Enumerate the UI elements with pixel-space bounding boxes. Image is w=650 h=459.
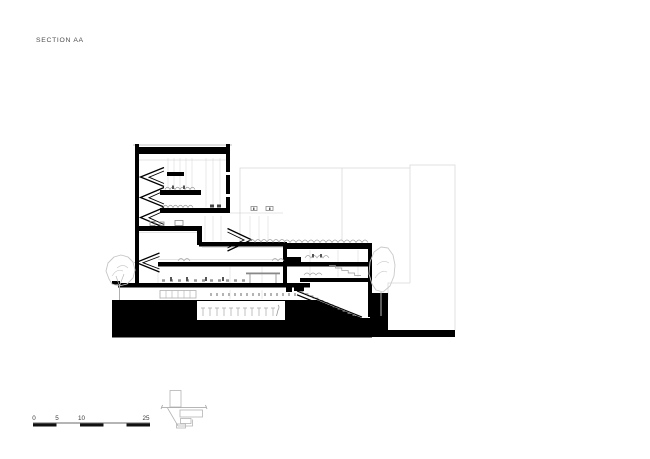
roof-post-left: [135, 144, 139, 155]
key-plan-wing: [180, 410, 203, 417]
floor-slab-lower: [135, 226, 199, 231]
tower-wall-left: [135, 154, 139, 287]
stair-landing-block: [294, 287, 304, 291]
floor-slab-mid: [160, 208, 230, 213]
stair-flight-1: [141, 168, 165, 187]
scale-label-5: 5: [55, 415, 59, 422]
tower-chairs: [210, 205, 221, 208]
stair-chevrons: [136, 168, 252, 273]
scale-label-25: 25: [142, 415, 150, 422]
scale-label-0: 0: [32, 415, 36, 422]
scale-bar-segments: [33, 424, 150, 427]
poche-footing: [370, 293, 388, 337]
tree-right-canopy: [369, 247, 395, 292]
floor-slab-upper: [160, 190, 201, 195]
stair-flight-ground: [136, 253, 160, 272]
key-plan: [161, 391, 207, 429]
roof-slab: [135, 147, 230, 154]
counter: [246, 273, 280, 275]
terrace-pots: [251, 207, 273, 211]
tree-left: [106, 255, 135, 300]
green-roof-slab: [283, 243, 372, 249]
scale-bar: 0 5 10 25: [32, 415, 150, 427]
counter-legs: [250, 274, 276, 283]
landing-slab: [167, 172, 184, 176]
background-connector: [388, 283, 410, 300]
tower-wall-right-1: [226, 154, 230, 172]
ground-slab: [118, 283, 310, 288]
upper-people-marks: [312, 254, 322, 258]
background-block-b: [410, 165, 455, 330]
shelf-dividers: [166, 291, 190, 299]
poche-strip-right: [388, 330, 455, 337]
wing-wall-left: [283, 249, 287, 283]
page-title: SECTION AA: [36, 37, 84, 44]
key-plan-court: [181, 419, 192, 424]
drawing-sheet: SECTION AA: [0, 0, 650, 459]
section-drawing-canvas: SECTION AA: [0, 0, 650, 459]
scale-label-10: 10: [78, 415, 86, 422]
junction-stub: [286, 283, 292, 292]
key-plan-tower: [170, 391, 181, 408]
long-floor-slab: [158, 262, 372, 267]
tower-wall-right-2: [226, 175, 230, 194]
green-roof-planting: [284, 240, 368, 243]
background-block-a: [240, 168, 410, 242]
right-floor-slab: [300, 278, 372, 282]
slab-d-objects: [150, 221, 183, 226]
roof-post-right: [226, 144, 230, 155]
seating-steps: [329, 266, 361, 276]
basement-room: [197, 301, 285, 320]
terrace-planting: [249, 240, 285, 243]
